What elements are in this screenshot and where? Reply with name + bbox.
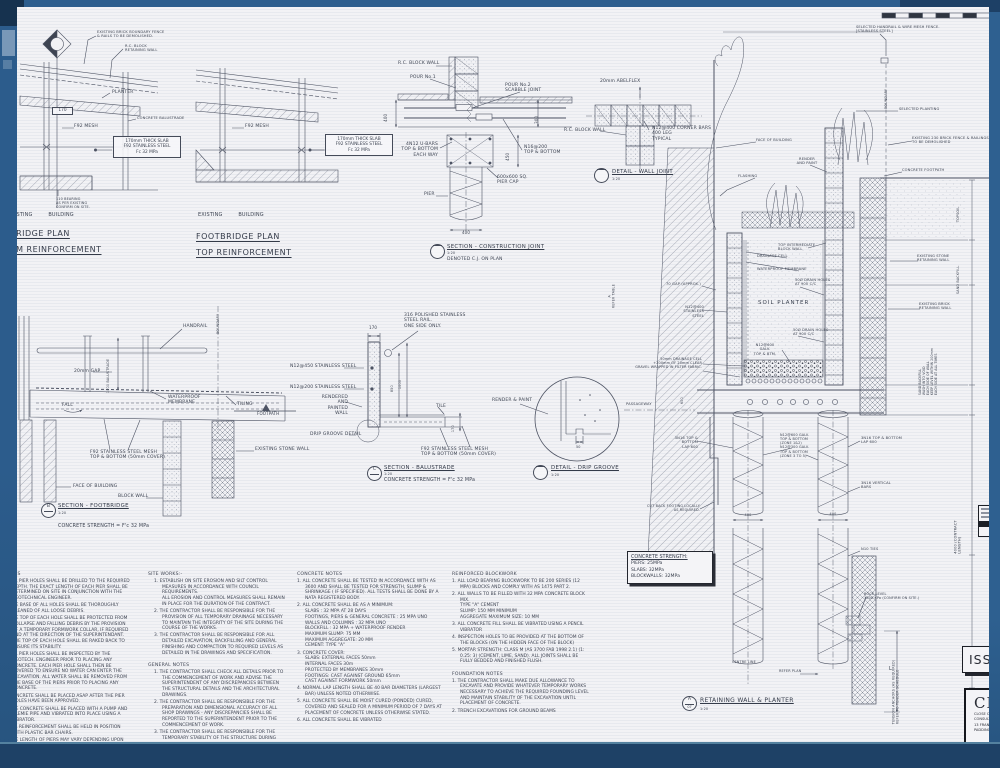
callout-render-paint: RENDER & PAINT [492,398,532,403]
callout-tiling: TILING [237,402,253,407]
dim-400-bottom: 400 [458,231,474,236]
callout-drain-holes-1: 50Ø DRAIN HOLES AT 900 C/C [795,278,830,287]
title-section-footbridge: SECTION - FOOTBRIDGE [58,503,129,510]
callout-selected-planting: SELECTED PLANTING [899,107,939,111]
note-item: 5. ALL CONCRETE SHALL BE MOIST CURED (PO… [297,699,442,716]
photo-border-left [0,0,17,768]
note-item: 4. ALL PIER HOLES SHALL BE INSPECTED BY … [4,652,132,692]
callout-pier: PIER [424,192,435,197]
photo-border-bottom [0,742,1000,768]
callout-existing-brick-retaining: EXISTING BRICK RETAINING WALL [919,302,952,311]
note-item: 1. ALL PIER HOLES SHALL BE DRILLED TO TH… [4,579,132,602]
callout-n12-galv: N12@600 GALV. TOP & BTM. [750,343,780,356]
callout-u-bars: 4N12 U-BARS TOP & BOTTOM EACH WAY [398,142,438,158]
scale-retaining: 1:20 [700,707,708,711]
note-denoted-cj: DENOTED C.J. ON PLAN [447,257,503,262]
callout-face-of-building: FACE OF BUILDING [73,484,117,489]
dim-300: 300 [535,116,540,124]
label-passageway: PASSAGEWAY [626,402,652,406]
title-section-balustrade: SECTION - BALUSTRADE [384,465,455,472]
dim-400-pier-left: 400 [740,513,756,517]
label-tension-anchors: TENSION ANCHORS (AS REQUIRED) REFER TO T… [892,660,900,725]
notes-heading-site-works: SITE WORKS:- [148,572,286,577]
photo-border-top [0,0,1000,7]
notes-column-blockwork-foundation: REINFORCED BLOCKWORK 1. ALL LOAD BEARING… [452,572,592,716]
note-item: 1. ESTABLISH ON SITE EROSION AND SILT CO… [154,579,286,608]
notes-heading-general: GENERAL NOTES [148,663,286,668]
callout-f92-mesh: F92 STAINLESS STEEL MESH TOP & BOTTOM (5… [90,450,165,461]
dim-1000: 1000 [398,380,402,389]
callout-handrail: HANDRAIL [183,324,207,329]
label-existing-building-top: EXISTING BUILDING [198,212,264,218]
label-topsoil: TOPSOIL [956,207,960,223]
callout-tile: TILE [436,404,446,409]
note-item: 3. THE TOP OF EACH HOLE SHALL BE PROTECT… [4,616,132,650]
dim-450: 450 [506,153,511,161]
label-refer-plan: REFER PLAN [779,669,801,673]
note-item: 5. MORTAR STRENGTH: CLASS M (AS 3700 FAB… [452,648,592,665]
callout-waterproof-membrane: WATERPROOF MEMBRANE [168,395,201,406]
dim-slab-thickness: 170 [52,107,73,115]
dim-600: 600 [680,397,684,404]
note-item: 3. CONCRETE COVER: SLABS: EXTERNAL FACES… [297,651,442,685]
note-item: 2. THE CONTRACTOR SHALL BE RESPONSIBLE F… [154,700,286,729]
title-section-construction-joint: SECTION - CONSTRUCTION JOINT [447,244,544,251]
callout-render-and-paint: RENDER AND PAINT [794,157,820,166]
callout-bearing: 110 BEARING AS PER EXISTING CONFIRM ON S… [56,197,90,209]
callout-n12-450: N12@450 STAINLESS STEEL [290,364,356,369]
title-detail-wall-joint: DETAIL - WALL JOINT [612,169,673,176]
note-item: 1. THE CONTRACTOR SHALL MAKE DUE ALLOWAN… [452,679,592,708]
dim-contract-length: 4000 (CONTRACT LENGTH) [953,516,962,554]
callout-abelflex: 20mm ABELFLEX [600,79,640,84]
callout-vertical-bars: 3N16 VERTICAL BARS [861,481,891,490]
callout-rc-block-wall-joint: R.C. BLOCK WALL [564,128,605,133]
note-concrete-strength-c: CONCRETE STRENGTH = F'c 32 MPa [384,478,475,484]
note-item: 2. ALL WALLS TO BE FILLED WITH 32 MPA CO… [452,592,592,621]
label-soil-planter: SOIL PLANTER [758,300,809,307]
note-item: 5. CONCRETE SHALL BE PLACED ASAP AFTER T… [4,694,132,705]
scale-section-balustrade: 1:20 [384,472,392,476]
label-footpath: FOOTPATH [257,412,279,417]
callout-rc-retaining-wall: R.C. BLOCK RETAINING WALL [125,44,158,53]
callout-face-of-building-retaining: FACE OF BUILDING [756,138,792,142]
callout-rc-block-wall: R.C. BLOCK WALL [398,61,439,66]
note-concrete-strength-b: CONCRETE STRENGTH = F'c 32 MPa [58,524,149,530]
callout-zone-bars: N12@600 GALV. TOP & BOTTOM (ZONE 1&2) N1… [780,433,809,458]
detail-bubble-drip [533,465,548,480]
notes-column-pier: NOTES 1. ALL PIER HOLES SHALL BE DRILLED… [4,572,132,745]
detail-drip-linework [520,377,619,461]
callout-concrete-balustrade: CONCRETE BALUSTRADE [137,116,184,120]
section-bubble-retaining: A07 [682,696,697,711]
callout-3n16-left: 3N16 TOP & BOTTOM LAP 600 [660,436,698,449]
section-footbridge-linework [19,306,296,516]
title-detail-drip-groove: DETAIL - DRIP GROOVE [551,465,619,472]
label-planter: PLANTER [112,90,134,95]
label-centre-line: CENTRE LINE [732,660,756,664]
note-item: 1. ALL LOAD BEARING BLOCKWORK TO BE 200 … [452,579,592,590]
dim-400: 400 [384,114,389,122]
callout-drip-groove: DRIP GROOVE DETAIL [310,432,361,437]
note-item: 2. ALL CONCRETE SHALL BE AS A MINIMUM: S… [297,603,442,649]
detail-bubble-wall-joint [594,168,609,183]
subtitle-top-reinforcement: TOP REINFORCEMENT [196,248,292,258]
note-item: 2. TRENCH EXCAVATIONS FOR GROUND BEAMS [452,709,592,715]
callout-corner-bars: N12@400 CORNER BARS 400 LEG TYPICAL [652,126,711,142]
callout-block-wall: BLOCK WALL [118,494,148,499]
photo-border-right [989,0,1000,768]
dim-850: 850 [390,385,394,392]
dim-400-pier-right: 400 [825,512,841,516]
note-item: 4. NORMAL LAP LENGTH SHALL BE 40 BAR DIA… [297,686,442,697]
callout-20mm-gap: 20mm GAP [74,369,100,374]
notes-heading-blockwork: REINFORCED BLOCKWORK [452,572,592,577]
scale-section-cj: 1:20 [447,251,455,255]
label-existing-building: EXISTING BUILDING [8,212,74,218]
callout-selected-fence: SELECTED HANDRAIL & WIRE MESH FENCE. [ST… [856,25,940,34]
callout-flashing: FLASHING [738,174,757,178]
callout-pier-cap: 600x600 SQ. PIER CAP [497,175,528,186]
label-boundary: BOUNDARY [216,314,220,334]
callout-pour1: POUR No.1 [410,75,436,80]
callout-3n16-right: 3N16 TOP & BOTTOM LAP 600 [861,436,902,445]
notes-column-concrete: CONCRETE NOTES 1. ALL CONCRETE SHALL BE … [297,572,442,725]
note-slab-spec-top: 170mm THICK SLAB F92 STAINLESS STEEL Fc … [325,134,393,156]
label-backfill-note: SAND BACKFILL WASH INTO VOID EACH SIDE O… [918,348,938,395]
callout-drain-holes-2: 50Ø DRAIN HOLES AT 900 C/C [793,328,828,337]
note-item: 3. THE CONTRACTOR SHALL BE RESPONSIBLE F… [154,730,286,741]
label-f92-mesh-top: F92 MESH [245,124,269,129]
label-sand-backfill: SAND BACKFILL [956,266,960,295]
callout-rock-level: ROCK LEVEL 1000 KPa (CONFIRM ON SITE.) [864,592,919,600]
dim-170-top: 170 [369,326,377,331]
dim-170-right: 170 [451,425,455,432]
notes-column-site-general: SITE WORKS:- 1. ESTABLISH ON SITE EROSIO… [148,572,286,743]
note-item: 3. THE CONTRACTOR SHALL BE RESPONSIBLE F… [154,633,286,656]
callout-rendered-wall: RENDERED AND PAINTED WALL [316,395,348,417]
scale-section-footbridge: 1:20 [58,511,66,515]
notes-heading-foundation: FOUNDATION NOTES [452,672,592,677]
dim-1000-balustrade: 1000 BALUSTRADE [106,359,110,393]
strength-heading: CONCRETE STRENGTH: [631,554,709,560]
callout-pour2: POUR No.2 SCABBLE JOINT [505,83,541,94]
callout-stainless-rail: 316 POLISHED STAINLESS STEEL RAIL. ONE S… [404,313,465,329]
callout-existing-stone-retaining: EXISTING STONE RETAINING WALL [917,254,950,263]
callout-n16: N16@200 TOP & BOTTOM [524,145,561,156]
note-item: 6. ALL CONCRETE SHALL BE VIBRATED [297,718,442,724]
note-item: 2. THE BASE OF ALL HOLES SHALL BE THOROU… [4,603,132,614]
strength-blockwalls: BLOCKWALLS: 32MPa [631,574,709,581]
label-fall: FALL [62,403,73,408]
notes-heading-pier: NOTES [4,572,132,577]
border-artifact [2,30,15,56]
callout-n12-stainless: N12@400 STAINLESS STEEL [676,305,704,318]
callout-existing-stone-wall: EXISTING STONE WALL [255,447,309,452]
border-artifact [3,60,12,69]
notes-heading-concrete: CONCRETE NOTES [297,572,442,577]
callout-70-gap: 70 GAP (APPROX.) [666,282,701,286]
note-item: 7. ALL REINFORCEMENT SHALL BE HELD IN PO… [4,725,132,736]
callout-cut-back-footing: CUT BACK FOOTING LOCALLY AS REQUIRED. [630,504,700,512]
section-bubble-footbridge: B [41,503,56,518]
callout-existing-fence: EXISTING BRICK BOUNDARY FENCE & RAILS TO… [97,30,164,39]
note-item: 1. THE CONTRACTOR SHALL CHECK ALL DETAIL… [154,670,286,699]
label-f92-mesh: F92 MESH [74,124,98,129]
section-bubble-cj [430,244,445,259]
note-item: 3. ALL CONCRETE FILL SHALL BE VIBRATED U… [452,622,592,633]
scale-detail-wall-joint: 1:20 [612,177,620,181]
callout-concrete-footpath: CONCRETE FOOTPATH [902,168,944,172]
title-footbridge-plan-top: FOOTBRIDGE PLAN [196,232,280,242]
callout-existing-brick-fence: EXISTING 230 BRICK FENCE & RAILINGS TO B… [912,136,989,145]
callout-ties: N10 TIES [861,547,878,551]
drawing-photo: EXISTING BRICK BOUNDARY FENCE & RAILS TO… [0,0,1000,768]
note-item: 4. INSPECTION HOLES TO BE PROVIDED AT TH… [452,635,592,646]
note-item: 1. ALL CONCRETE SHALL BE TESTED IN ACCOR… [297,579,442,602]
note-slab-spec: 170mm THICK SLAB F92 STAINLESS STEEL Fc … [113,136,181,158]
callout-drainage-cell: DRAINAGE CELL [757,254,788,258]
label-boundary-retaining: BOUNDARY [884,89,888,109]
callout-drainage-gravel: 50mm DRAINAGE CELL +200mm OF 20mm CLEAR … [622,357,702,369]
section-bubble-balustrade: C [367,466,382,481]
callout-top-intermediate-wall: TOP INTERMEDIATE BLOCK WALL [778,243,815,252]
note-item: 6. THE CONCRETE SHALL BE PLACED WITH A P… [4,707,132,724]
callout-f92-mesh-balustrade: F92 STAINLESS STEEL MESH TOP & BOTTOM (5… [421,447,496,458]
title-retaining-wall-planter: RETAINING WALL & PLANTER [700,697,794,704]
note-item: 2. THE CONTRACTOR SHALL BE RESPONSIBLE F… [154,609,286,632]
dim-50: 50 [576,445,581,449]
callout-n12-200: N12@200 STAINLESS STEEL [290,385,356,390]
scale-bar [882,13,990,18]
bubble-number: 07 [685,704,694,710]
dim-refer-table: A REFER TABLE [608,284,616,308]
callout-waterproof-membrane-retaining: WATERPROOF MEMBRANE [757,267,807,271]
strength-piers: PIERS: 25MPa [631,561,709,568]
scale-detail-drip: 1:20 [551,473,559,477]
concrete-strength-box: CONCRETE STRENGTH: PIERS: 25MPa SLABS: 3… [627,551,713,584]
